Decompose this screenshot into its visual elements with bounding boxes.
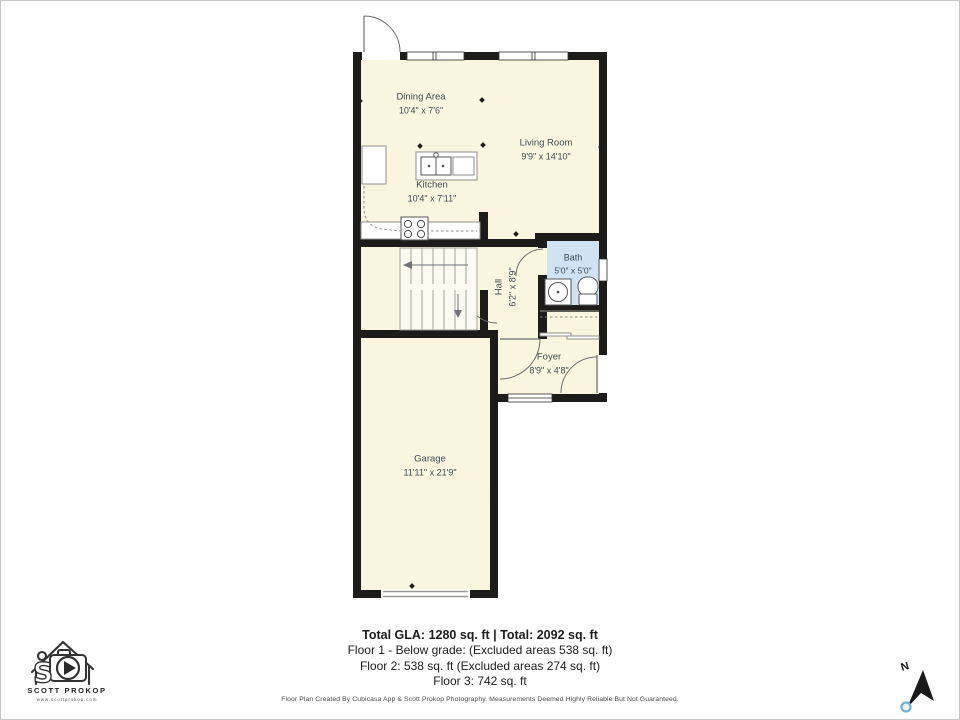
stairwell (400, 248, 477, 330)
wall-bath-top (535, 233, 607, 241)
floor2-area: Floor 2: 538 sq. ft (Excluded areas 274 … (0, 659, 960, 675)
floor3-area: Floor 3: 742 sq. ft (0, 674, 960, 690)
garage-door (381, 589, 470, 599)
wall-garage-right (490, 330, 498, 598)
wall-stub-stairs (480, 290, 488, 330)
fridge (362, 146, 386, 184)
logo-name: SCOTT PROKOP (24, 686, 110, 695)
floor-plan-svg: S (0, 0, 960, 720)
wall-garage-bottom-left (353, 590, 381, 598)
toilet-bowl (578, 277, 598, 296)
window-living (499, 52, 568, 60)
wall-bath-left-a (538, 241, 547, 248)
room-label-hall: Hall 6'2" x 8'9" (493, 267, 520, 306)
stairs (400, 248, 477, 330)
window-bath (599, 259, 607, 281)
closet-sliding-door-a (540, 333, 571, 336)
wall-kitchen-bottom (353, 239, 538, 247)
faucet (434, 153, 438, 157)
disclaimer: Floor Plan Created By Cubicasa App & Sco… (0, 696, 960, 703)
room-label-kitchen: Kitchen 10'4" x 7'11" (408, 179, 457, 206)
toilet-tank (579, 294, 597, 305)
area-summary: Total GLA: 1280 sq. ft | Total: 2092 sq.… (0, 627, 960, 690)
total-gla: Total GLA: 1280 sq. ft | Total: 2092 sq.… (0, 627, 960, 643)
island-counter (453, 157, 474, 175)
entry-top-door-arc (364, 16, 400, 52)
window-dining (407, 52, 464, 60)
room-label-bath: Bath 5'0" x 5'0" (554, 251, 591, 276)
bath-fixtures (545, 277, 598, 305)
room-label-garage: Garage 11'11" x 21'9" (403, 453, 456, 480)
closet-sliding-door-b (567, 336, 599, 339)
room-label-dining: Dining Area 10'4" x 7'6" (396, 91, 445, 118)
wall-left (353, 52, 361, 598)
north-arrow-base-dot (902, 703, 911, 712)
room-label-living: Living Room 9'9" x 14'10" (520, 137, 573, 164)
room-label-foyer: Foyer 8'9" x 4'8" (529, 351, 568, 378)
front-door-opening (599, 355, 607, 393)
logo-url: www.scottprokop.com (24, 697, 110, 702)
floor-plan-page: S Dining Area 10'4" x 7'6" Living Room 9… (0, 0, 960, 720)
floor1-area: Floor 1 - Below grade: (Excluded areas 5… (0, 643, 960, 659)
wall-garage-bottom-right (470, 590, 498, 598)
wall-garage-top (353, 330, 498, 338)
entry-top-opening (362, 52, 400, 60)
